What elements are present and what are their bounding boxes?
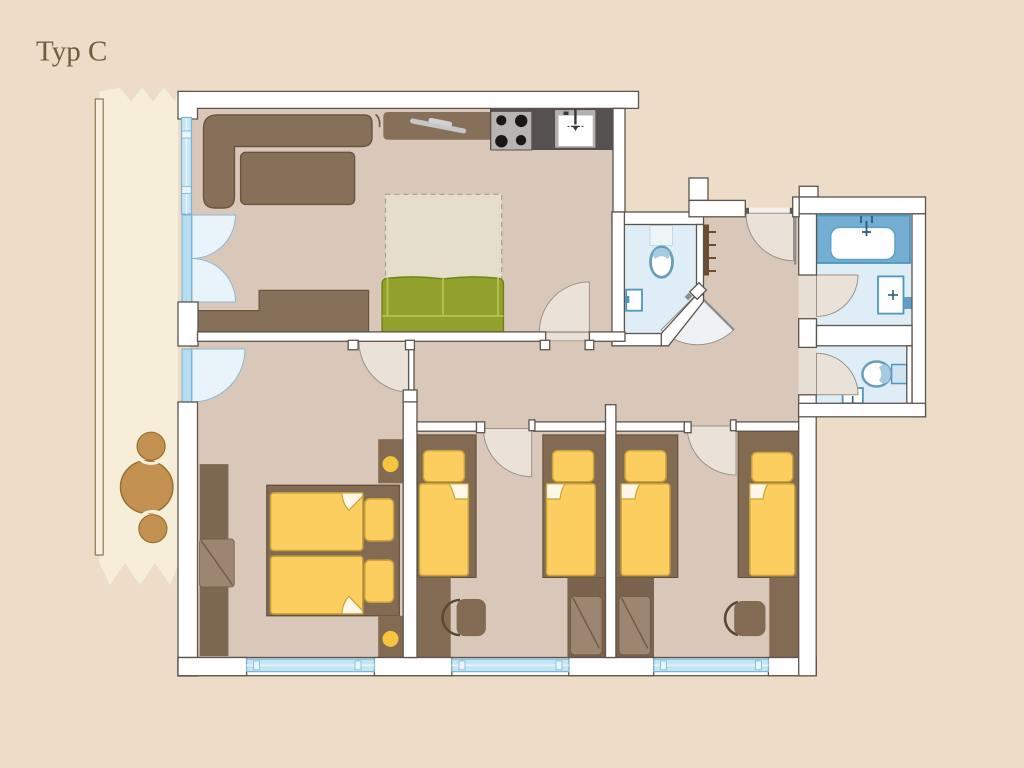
svg-text:Typ C: Typ C [36, 36, 107, 68]
